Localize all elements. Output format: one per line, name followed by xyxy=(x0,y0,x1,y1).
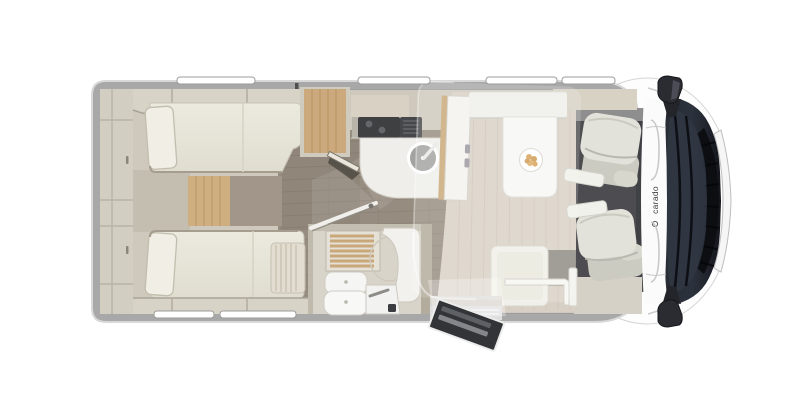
svg-text:carado: carado xyxy=(650,186,660,214)
